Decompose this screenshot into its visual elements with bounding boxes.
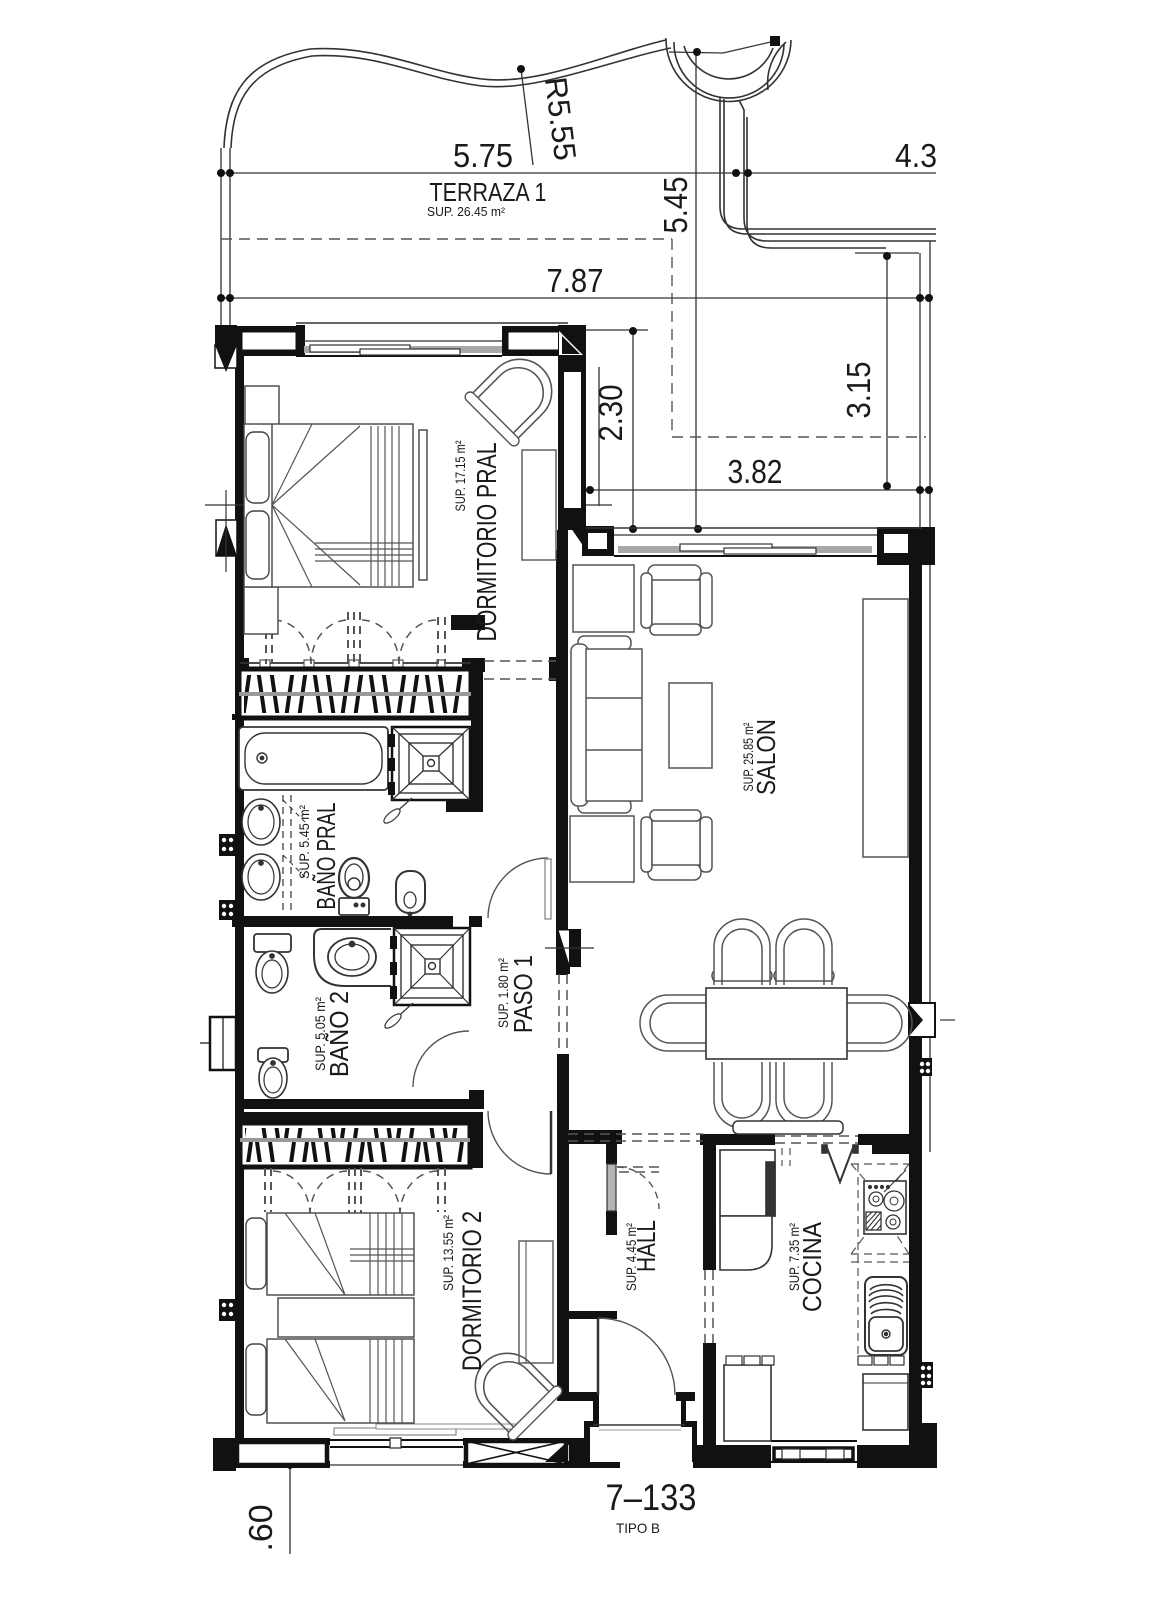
svg-text:PASO 1: PASO 1: [508, 955, 538, 1033]
svg-text:SUP. 4.45 m²: SUP. 4.45 m²: [624, 1223, 639, 1291]
svg-text:SUP. 1.80 m²: SUP. 1.80 m²: [496, 958, 511, 1028]
svg-text:TERRAZA 1: TERRAZA 1: [430, 177, 547, 207]
svg-text:DORMITORIO PRAL: DORMITORIO PRAL: [471, 443, 502, 642]
svg-text:DORMITORIO 2: DORMITORIO 2: [457, 1211, 487, 1371]
svg-text:TIPO B: TIPO B: [616, 1520, 660, 1536]
svg-text:SUP. 25.85 m²: SUP. 25.85 m²: [741, 722, 756, 791]
svg-text:SUP. 17.15 m²: SUP. 17.15 m²: [453, 440, 468, 511]
svg-text:7.87: 7.87: [547, 262, 604, 299]
svg-text:BAÑO 2: BAÑO 2: [324, 991, 354, 1077]
svg-text:BAÑO PRAL: BAÑO PRAL: [311, 803, 341, 910]
svg-text:3.15: 3.15: [840, 362, 877, 419]
svg-text:7–133: 7–133: [606, 1477, 697, 1518]
svg-text:5.45: 5.45: [657, 177, 694, 234]
svg-text:SUP. 13.55 m²: SUP. 13.55 m²: [441, 1215, 456, 1291]
svg-text:2.30: 2.30: [592, 385, 629, 442]
svg-text:.60: .60: [242, 1505, 279, 1552]
svg-text:SUP. 5.45 m²: SUP. 5.45 m²: [297, 805, 312, 879]
svg-text:4.3: 4.3: [895, 137, 937, 174]
svg-text:3.82: 3.82: [728, 453, 783, 490]
svg-text:5.75: 5.75: [453, 137, 513, 174]
svg-text:SUP. 26.45 m²: SUP. 26.45 m²: [427, 204, 506, 219]
svg-text:SUP. 7.35 m²: SUP. 7.35 m²: [787, 1223, 802, 1291]
svg-text:SUP. 5.05 m²: SUP. 5.05 m²: [313, 997, 328, 1071]
